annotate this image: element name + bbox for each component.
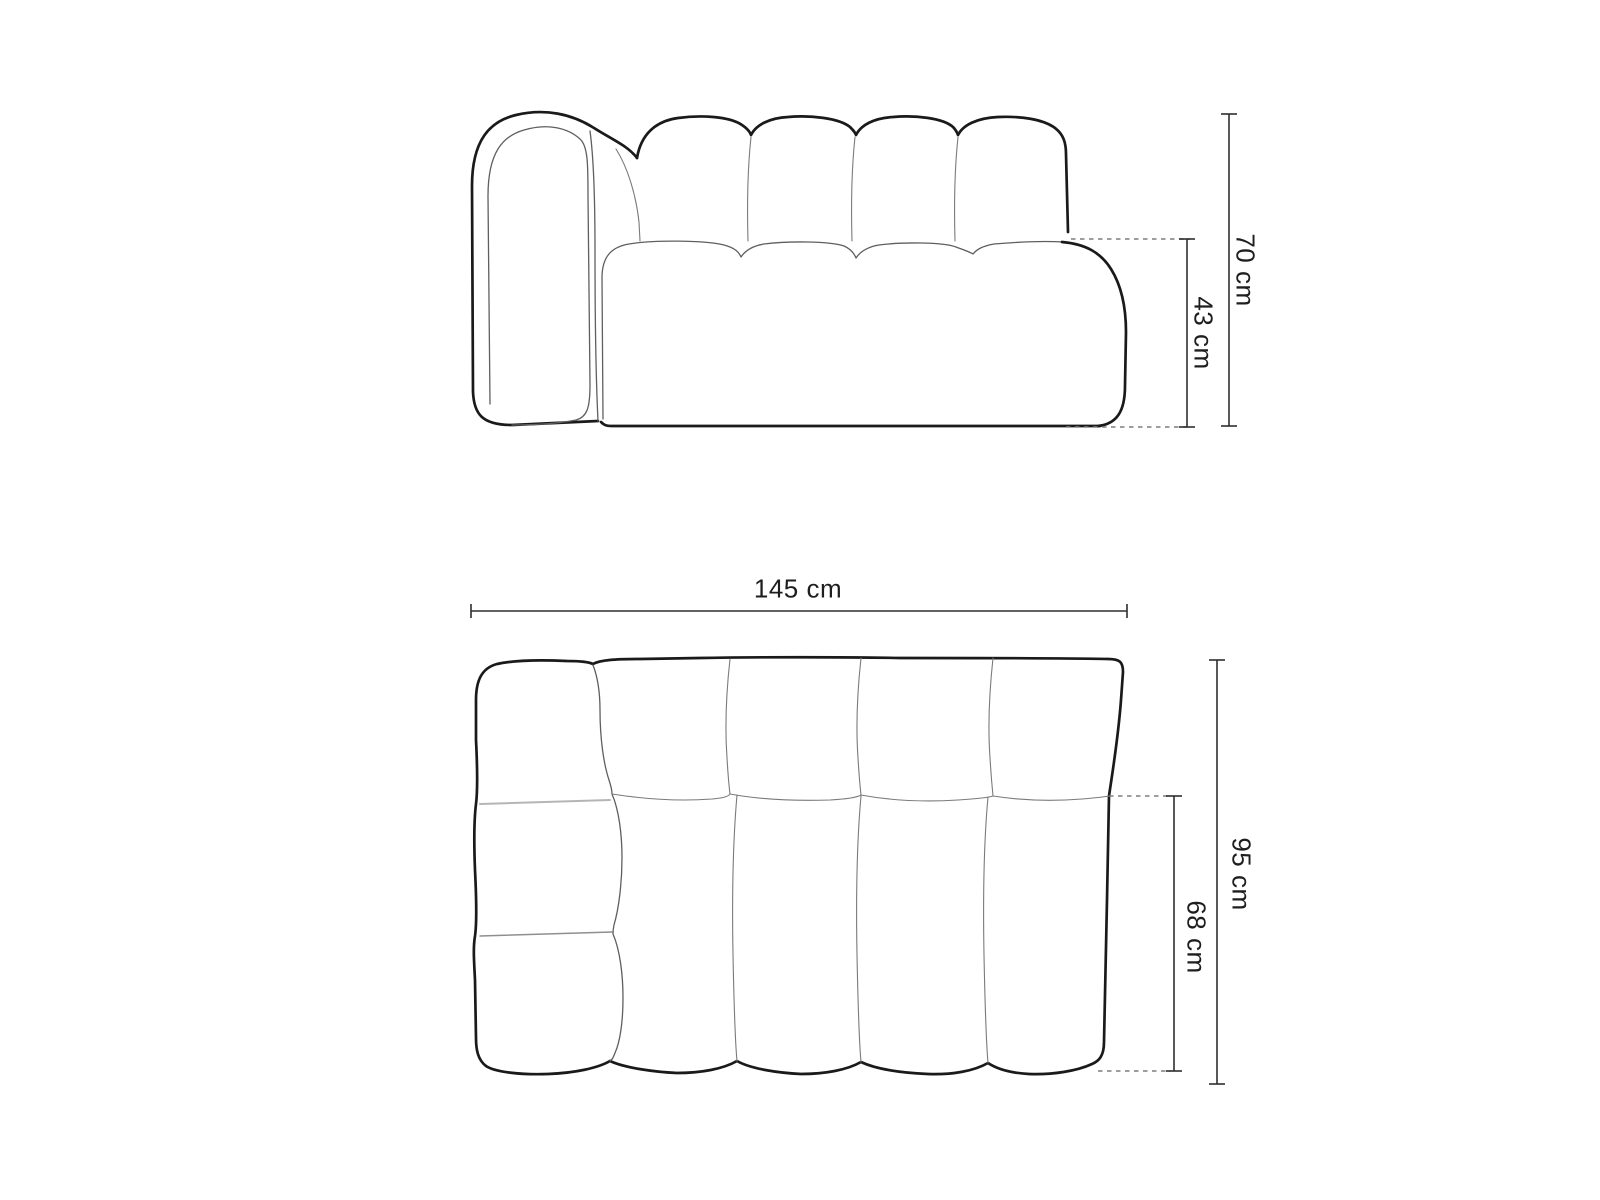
front-seat-arches <box>602 241 1062 419</box>
plan-seat-divider-2 <box>857 796 861 1062</box>
front-armrest-right-seam <box>590 131 598 421</box>
plan-armrest-outline <box>474 660 610 1074</box>
front-armrest-outline <box>472 112 637 425</box>
plan-overall-width-label: 145 cm <box>754 574 842 605</box>
plan-dim-overall-depth <box>1209 660 1225 1084</box>
sofa-dimension-diagram: 70 cm 43 cm 145 cm 95 cm 68 cm <box>0 0 1600 1200</box>
plan-seat-divider-1 <box>733 795 737 1061</box>
plan-dim-overall-width <box>471 604 1127 618</box>
plan-seat-divider-3 <box>984 797 988 1063</box>
front-overall-height-label: 70 cm <box>1230 233 1261 306</box>
plan-view <box>471 604 1225 1084</box>
plan-backrest-divider-1 <box>726 659 730 794</box>
front-backrest-divider-2 <box>852 137 855 241</box>
front-armrest-outer-seam <box>616 149 640 241</box>
plan-armrest-right-contour <box>593 665 623 1061</box>
front-armrest-inner-seam <box>488 127 590 425</box>
front-bottom-edge <box>601 422 1100 426</box>
front-backrest-divider-3 <box>955 137 958 241</box>
plan-seat-depth-label: 68 cm <box>1181 900 1212 973</box>
front-seat-height-label: 43 cm <box>1188 296 1219 369</box>
front-seat-right-outline <box>1062 242 1126 426</box>
front-elevation-view <box>472 112 1237 427</box>
plan-armrest-divider-1 <box>480 800 610 804</box>
plan-overall-depth-label: 95 cm <box>1226 837 1257 910</box>
plan-backrest-divider-2 <box>857 658 861 795</box>
plan-backrest-divider-3 <box>989 658 993 796</box>
front-backrest-divider-1 <box>748 137 751 241</box>
plan-armrest-divider-2 <box>480 932 612 936</box>
